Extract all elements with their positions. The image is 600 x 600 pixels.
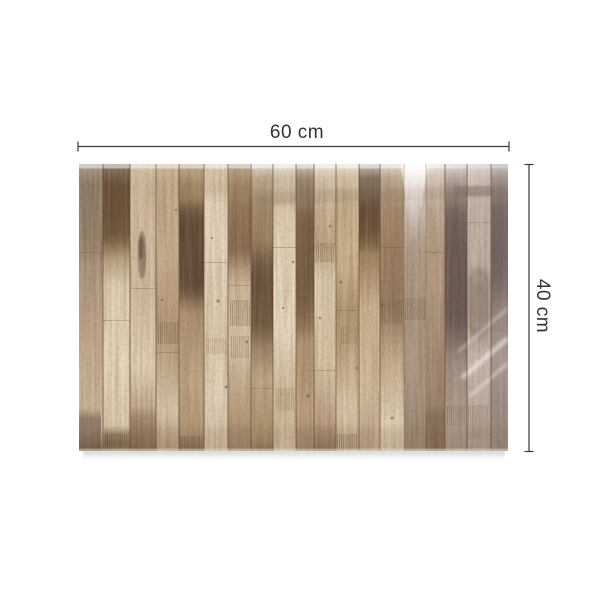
svg-text:40 cm: 40 cm [532,279,553,333]
svg-text:60 cm: 60 cm [270,122,324,143]
